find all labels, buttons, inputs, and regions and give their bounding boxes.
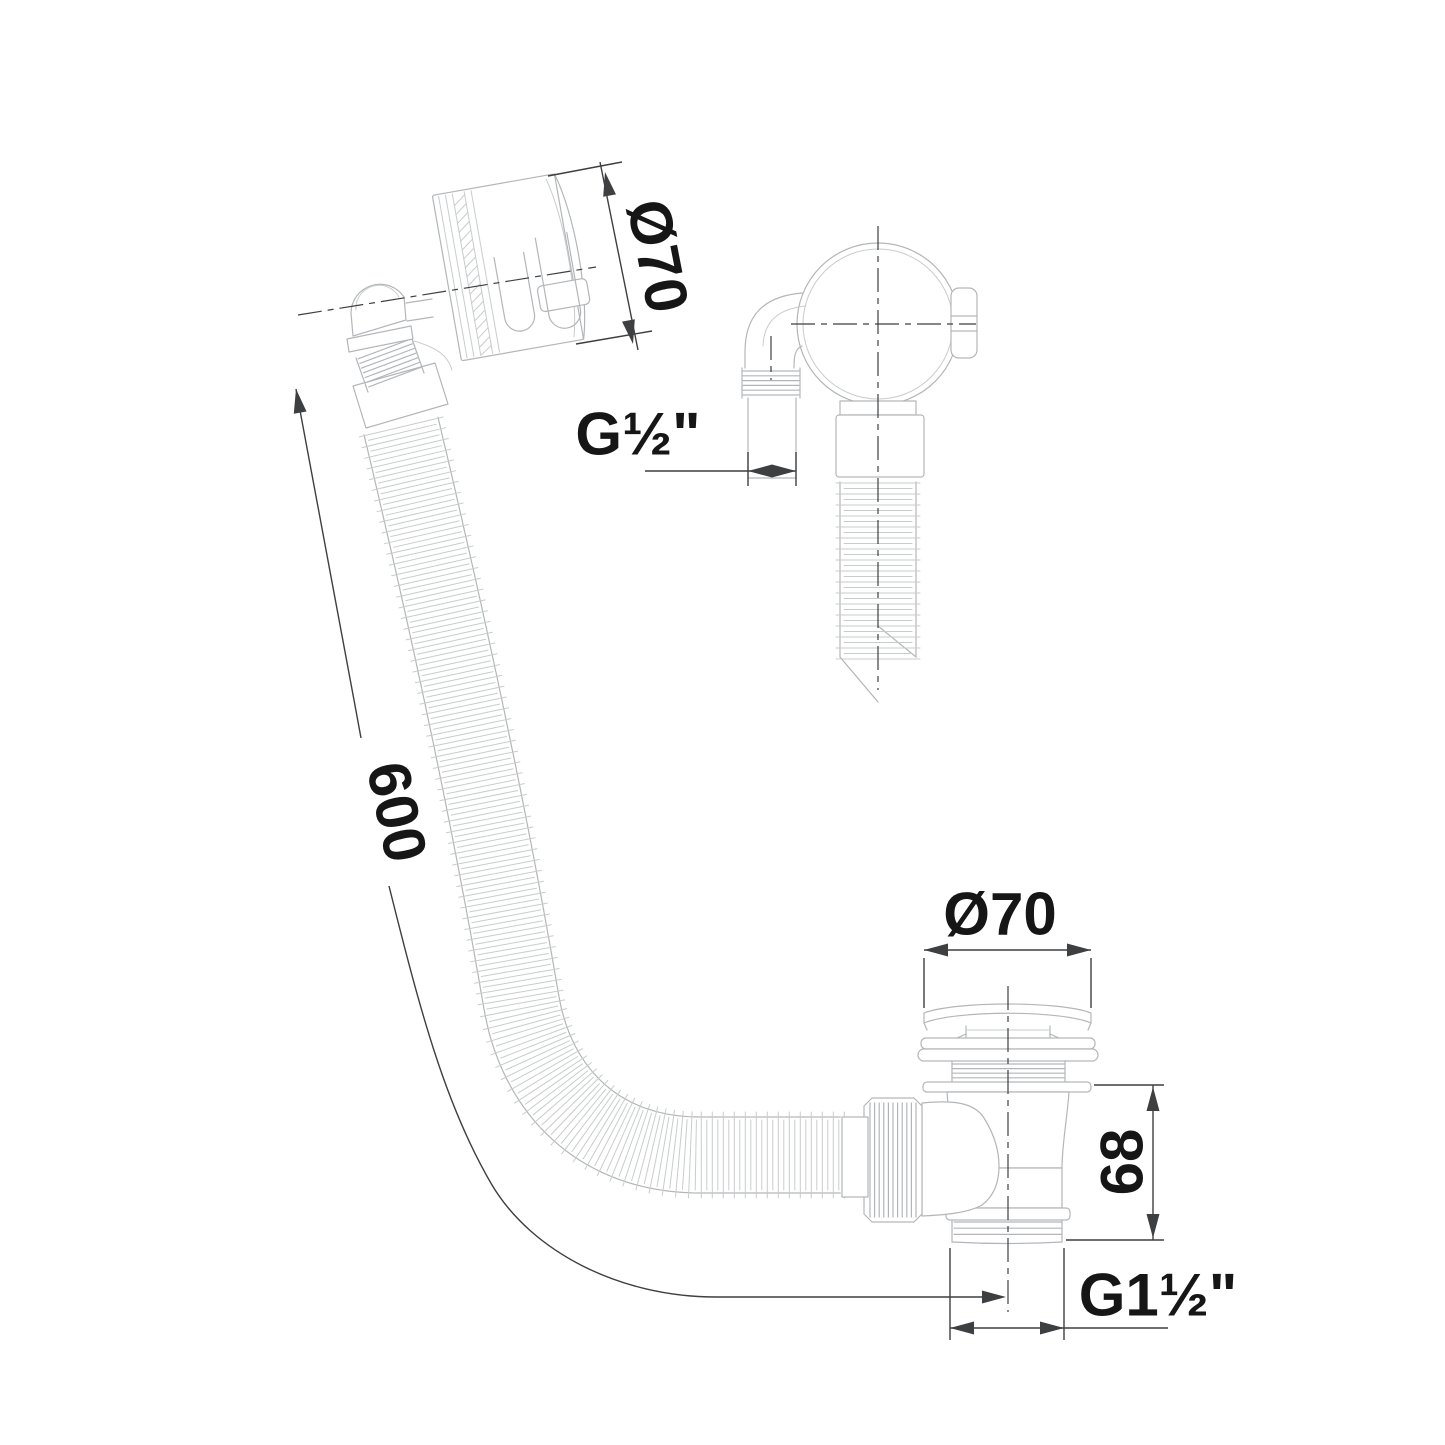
- overflow-side-view: [347, 172, 596, 428]
- overflow-elbow-neck: [406, 299, 433, 321]
- hose-corrugation: [359, 417, 846, 1198]
- bath-waste-view: [842, 1004, 1098, 1244]
- overflow-clip: [951, 288, 977, 358]
- waste-body-flange: [923, 1082, 1091, 1092]
- dim-waste-height: 68: [1066, 1085, 1164, 1240]
- flexible-hose: [359, 417, 846, 1198]
- overflow-housing: [432, 172, 596, 361]
- dim-label-waste-height: 68: [1089, 1129, 1156, 1196]
- technical-drawing-page: Ø70 G½" 600 Ø70: [0, 0, 1445, 1445]
- dim-label-hose-length: 600: [354, 756, 440, 868]
- overflow-front-thread: [742, 368, 800, 398]
- front-collar-wide: [836, 415, 924, 477]
- overflow-outlet-tube: [353, 363, 448, 428]
- dim-overflow-thread: G½": [575, 401, 796, 487]
- dim-label-waste-diameter: Ø70: [943, 881, 1056, 948]
- hose-nut: [864, 1098, 922, 1222]
- dim-label-waste-thread: G1½": [1079, 1262, 1238, 1329]
- hose-sleeve: [842, 1117, 868, 1197]
- waste-bottom-thread: [952, 1220, 1062, 1244]
- technical-drawing-canvas: Ø70 G½" 600 Ø70: [0, 0, 1445, 1445]
- dim-label-overflow-thread: G½": [575, 401, 700, 468]
